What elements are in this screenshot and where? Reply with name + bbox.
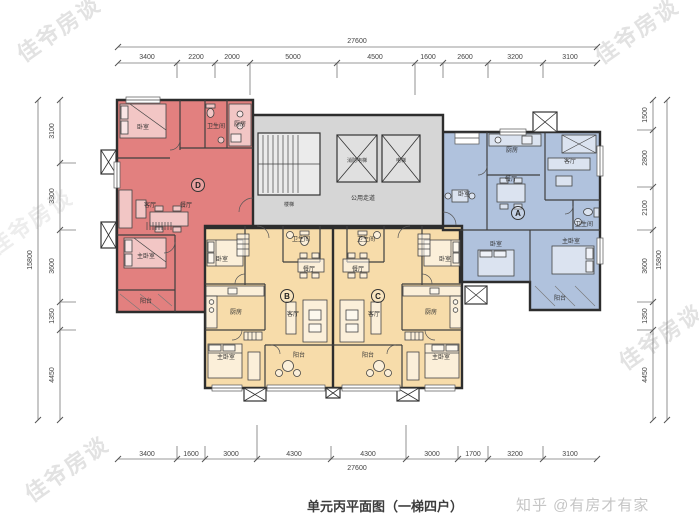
floor-plan-canvas: 佳爷房谈 佳爷房谈 佳爷房谈 佳爷房谈 佳爷房谈 佳爷房谈: [0, 0, 699, 530]
room-label: 客厅: [368, 310, 380, 318]
dim-label: 3000: [424, 451, 440, 458]
room-label: 卧室: [490, 240, 502, 248]
dim-label: 3600: [49, 258, 56, 274]
room-label: 客厅: [564, 157, 576, 165]
dim-label: 4500: [367, 54, 383, 61]
shaft-icon: [326, 388, 340, 398]
room-label: 主卧室: [137, 252, 155, 260]
unit-tag-a: A: [512, 207, 525, 220]
dim-top-total: 27600: [347, 38, 367, 45]
dim-label: 3100: [49, 123, 56, 139]
plan-svg: D A B C 卧室 卫生间 厨房 客厅 餐厅 主卧室 阳台 卧室 厨房 餐厅 …: [0, 0, 699, 530]
shaft-icon: [533, 112, 557, 132]
room-label: 卫生间: [357, 235, 375, 243]
unit-tag-c: C: [372, 290, 385, 303]
room-label: 卫生间: [207, 122, 225, 130]
room-label: 餐厅: [352, 265, 364, 273]
room-label: 卧室: [137, 123, 149, 131]
room-label: 卧室: [439, 255, 451, 263]
dim-label: 3200: [507, 54, 523, 61]
room-label: 卫生间: [292, 235, 310, 243]
dim-label: 4450: [642, 367, 649, 383]
svg-text:C: C: [375, 292, 381, 301]
dim-label: 3100: [562, 451, 578, 458]
dim-label: 4300: [360, 451, 376, 458]
dim-label: 2200: [188, 54, 204, 61]
svg-text:A: A: [515, 209, 521, 218]
room-label: 厨房: [234, 120, 246, 128]
dim-label: 2600: [457, 54, 473, 61]
room-label: 主卧室: [562, 237, 580, 245]
elevator-label: 消防电梯: [347, 157, 367, 164]
dim-label: 1500: [642, 107, 649, 123]
stair-icon: [258, 133, 320, 195]
room-label: 阳台: [293, 351, 305, 359]
dim-bottom-total: 27600: [347, 465, 367, 472]
brand-watermark: 知乎 @有房才有家: [516, 494, 649, 515]
dim-label: 3600: [642, 258, 649, 274]
dim-label: 4450: [49, 367, 56, 383]
dim-left-total: 15800: [27, 250, 34, 270]
dim-label: 2100: [642, 200, 649, 216]
room-label: 主卧室: [432, 353, 450, 361]
room-label: 餐厅: [505, 175, 517, 183]
room-label: 厨房: [425, 308, 437, 316]
stair-label: 楼梯: [284, 201, 294, 208]
shaft-icon: [465, 286, 487, 304]
room-label: 主卧室: [217, 353, 235, 361]
dim-label: 3200: [507, 451, 523, 458]
svg-text:B: B: [284, 292, 290, 301]
room-label: 卧室: [216, 255, 228, 263]
room-label: 阳台: [554, 294, 566, 302]
shaft-icon: [244, 388, 266, 401]
dim-label: 1600: [420, 54, 436, 61]
dim-label: 2800: [642, 150, 649, 166]
room-label: 阳台: [140, 297, 152, 305]
dim-label: 3400: [139, 54, 155, 61]
dim-label: 3100: [562, 54, 578, 61]
room-label: 餐厅: [180, 201, 192, 209]
unit-tag-b: B: [281, 290, 294, 303]
dim-label: 3300: [49, 188, 56, 204]
dim-label: 1600: [183, 451, 199, 458]
elevator-label: 电梯: [396, 157, 406, 164]
unit-tag-d: D: [192, 179, 205, 192]
dim-right-total: 15800: [656, 250, 663, 270]
room-label: 卫生间: [575, 220, 593, 228]
dim-label: 2000: [224, 54, 240, 61]
dim-label: 1700: [465, 451, 481, 458]
dim-label: 4300: [286, 451, 302, 458]
room-label: 厨房: [506, 146, 518, 154]
dim-label: 3000: [223, 451, 239, 458]
page-title: 单元丙平面图（一梯四户）: [275, 496, 495, 515]
dim-label: 3400: [139, 451, 155, 458]
room-label: 餐厅: [303, 265, 315, 273]
svg-text:D: D: [195, 181, 201, 190]
room-label: 阳台: [362, 351, 374, 359]
room-label: 厨房: [230, 308, 242, 316]
room-label: 卧室: [458, 190, 470, 198]
room-label: 客厅: [144, 201, 156, 209]
corridor-label: 公用走道: [351, 194, 375, 202]
dim-label: 1350: [642, 308, 649, 324]
shaft-icon: [101, 222, 116, 248]
dim-label: 5000: [285, 54, 301, 61]
room-label: 客厅: [287, 310, 299, 318]
dim-label: 1350: [49, 308, 56, 324]
